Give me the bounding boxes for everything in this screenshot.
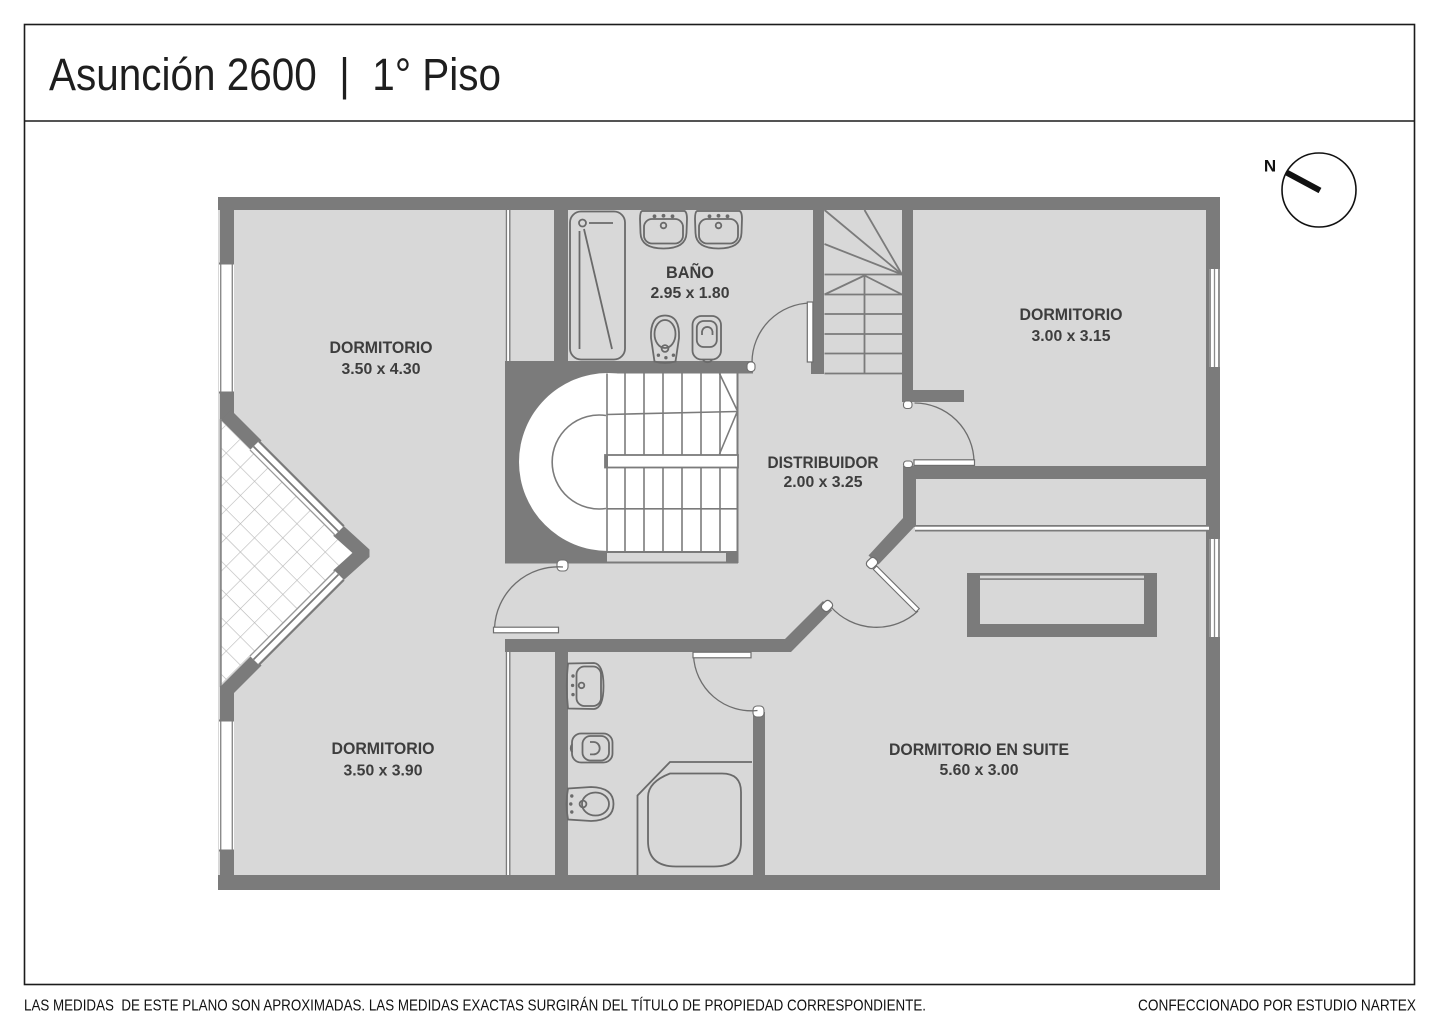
svg-text:DORMITORIO: DORMITORIO bbox=[1020, 306, 1123, 324]
svg-text:5.60 x 3.00: 5.60 x 3.00 bbox=[940, 762, 1019, 779]
svg-text:LAS MEDIDAS DE ESTE PLANO SON: LAS MEDIDAS DE ESTE PLANO SON APROXIMADA… bbox=[24, 998, 926, 1015]
svg-text:2.00 x 3.25: 2.00 x 3.25 bbox=[784, 474, 863, 491]
svg-text:DORMITORIO: DORMITORIO bbox=[332, 740, 435, 758]
svg-text:CONFECCIONADO POR ESTUDIO NART: CONFECCIONADO POR ESTUDIO NARTEX bbox=[1138, 998, 1417, 1015]
svg-text:BAÑO: BAÑO bbox=[666, 262, 714, 282]
svg-text:N: N bbox=[1264, 157, 1276, 176]
svg-text:Asunción 2600 | 1° Piso: Asunción 2600 | 1° Piso bbox=[49, 49, 501, 100]
svg-text:DORMITORIO EN SUITE: DORMITORIO EN SUITE bbox=[889, 741, 1069, 759]
svg-text:2.95 x 1.80: 2.95 x 1.80 bbox=[651, 285, 730, 302]
svg-text:DISTRIBUIDOR: DISTRIBUIDOR bbox=[768, 454, 879, 472]
svg-text:3.50 x 4.30: 3.50 x 4.30 bbox=[342, 361, 421, 378]
svg-text:DORMITORIO: DORMITORIO bbox=[330, 339, 433, 357]
svg-text:3.50 x 3.90: 3.50 x 3.90 bbox=[344, 763, 423, 780]
svg-text:3.00 x 3.15: 3.00 x 3.15 bbox=[1032, 328, 1111, 345]
